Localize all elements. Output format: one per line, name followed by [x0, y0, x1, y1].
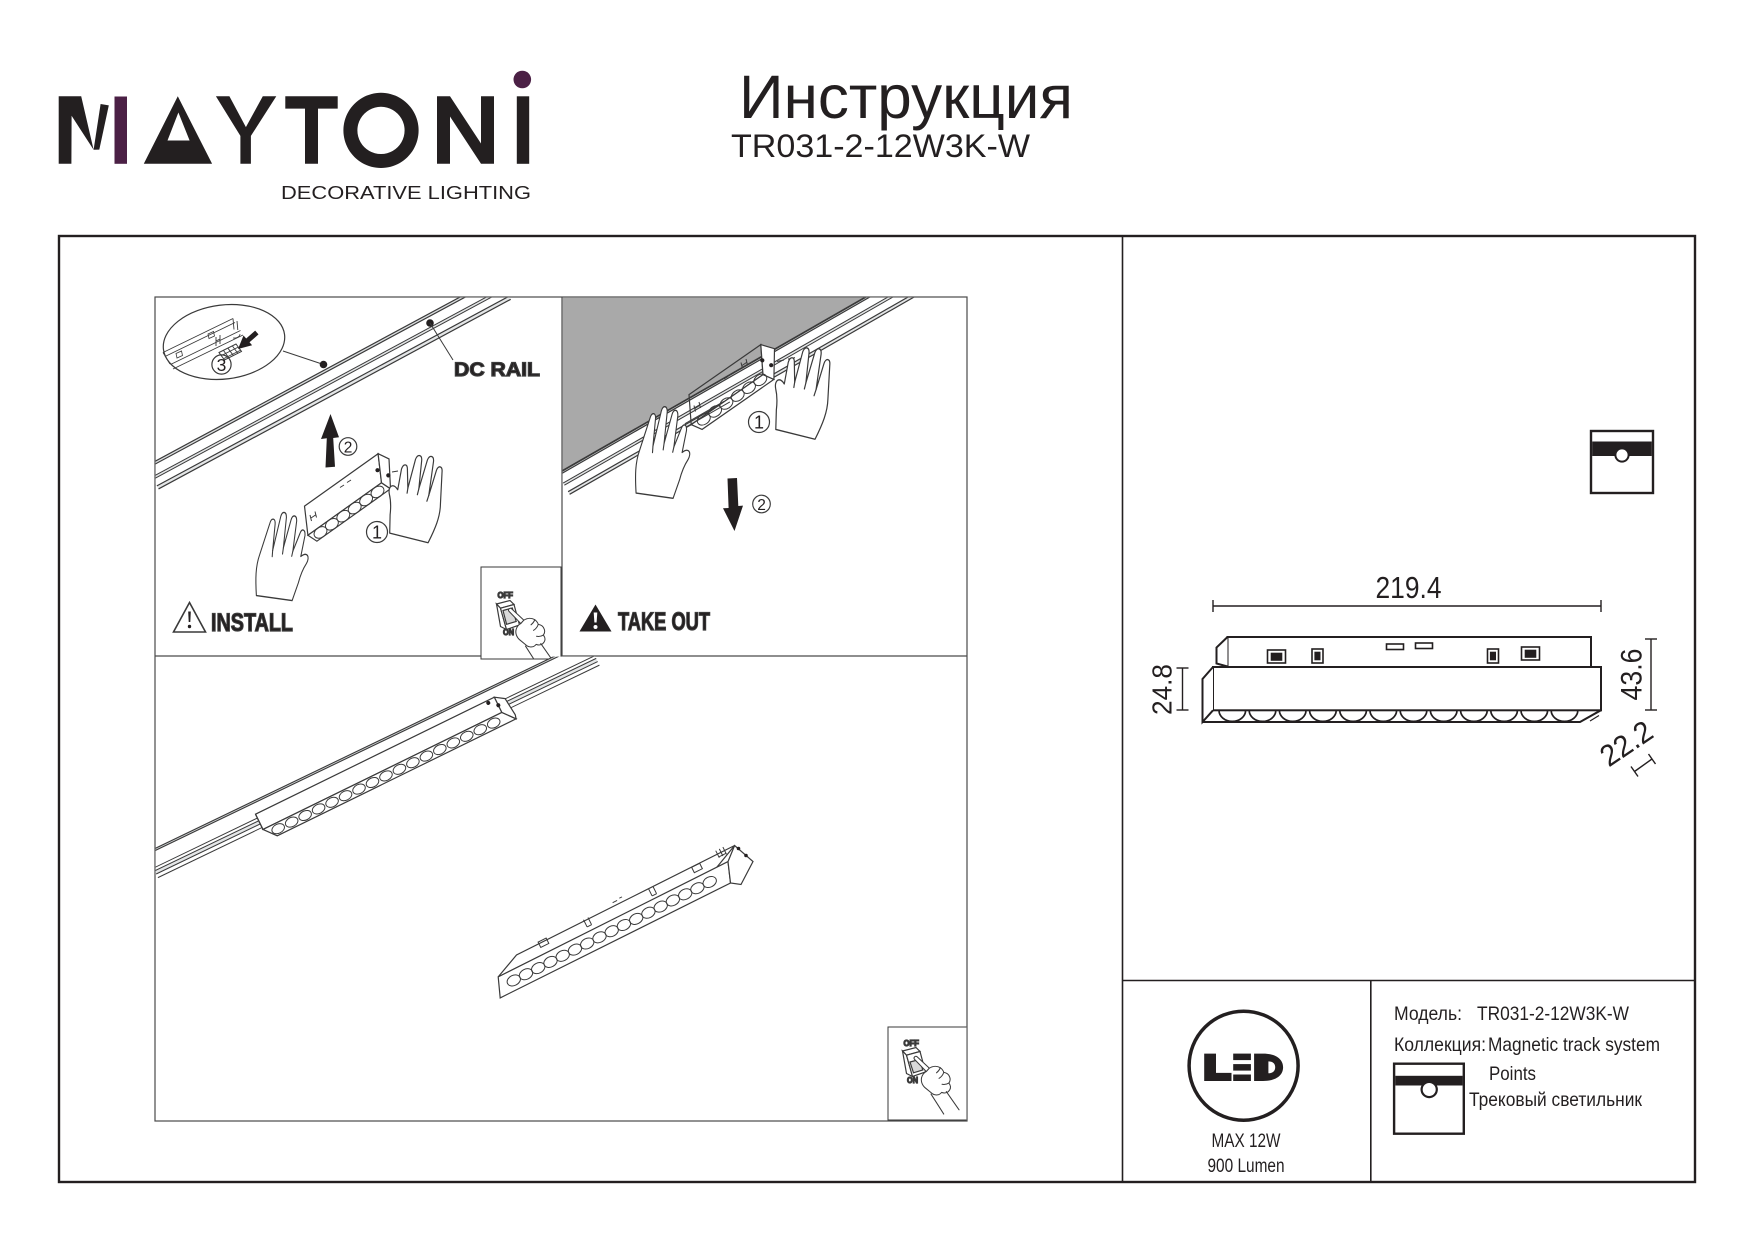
- svg-text:1: 1: [754, 413, 764, 433]
- svg-text:2: 2: [757, 497, 766, 514]
- svg-text:24.8: 24.8: [1147, 664, 1178, 715]
- svg-text:1: 1: [372, 523, 382, 543]
- svg-text:DECORATIVE LIGHTING: DECORATIVE LIGHTING: [281, 182, 531, 203]
- svg-text:22.2: 22.2: [1594, 715, 1659, 774]
- svg-text:43.6: 43.6: [1616, 649, 1649, 701]
- svg-text:219.4: 219.4: [1376, 571, 1442, 605]
- svg-text:Magnetic track system: Magnetic track system: [1488, 1034, 1660, 1056]
- svg-text:3: 3: [217, 355, 227, 375]
- svg-text:Модель:: Модель:: [1394, 1003, 1462, 1025]
- svg-text:Трековый светильник: Трековый светильник: [1469, 1089, 1642, 1111]
- svg-text:OFF: OFF: [904, 1038, 920, 1048]
- svg-text:TR031-2-12W3K-W: TR031-2-12W3K-W: [731, 128, 1031, 164]
- svg-text:Коллекция:: Коллекция:: [1394, 1034, 1486, 1056]
- svg-text:ON: ON: [907, 1075, 918, 1085]
- svg-text:Инструкция: Инструкция: [739, 63, 1073, 131]
- svg-text:Points: Points: [1489, 1063, 1536, 1085]
- svg-text:2: 2: [344, 440, 353, 457]
- svg-text:TR031-2-12W3K-W: TR031-2-12W3K-W: [1477, 1003, 1630, 1025]
- svg-text:900 Lumen: 900 Lumen: [1208, 1156, 1285, 1177]
- svg-text:MAX 12W: MAX 12W: [1212, 1131, 1281, 1152]
- svg-text:INSTALL: INSTALL: [211, 609, 293, 637]
- svg-text:ON: ON: [503, 627, 514, 637]
- svg-text:DC RAIL: DC RAIL: [454, 359, 540, 381]
- svg-text:TAKE OUT: TAKE OUT: [618, 608, 710, 636]
- svg-text:OFF: OFF: [498, 590, 514, 600]
